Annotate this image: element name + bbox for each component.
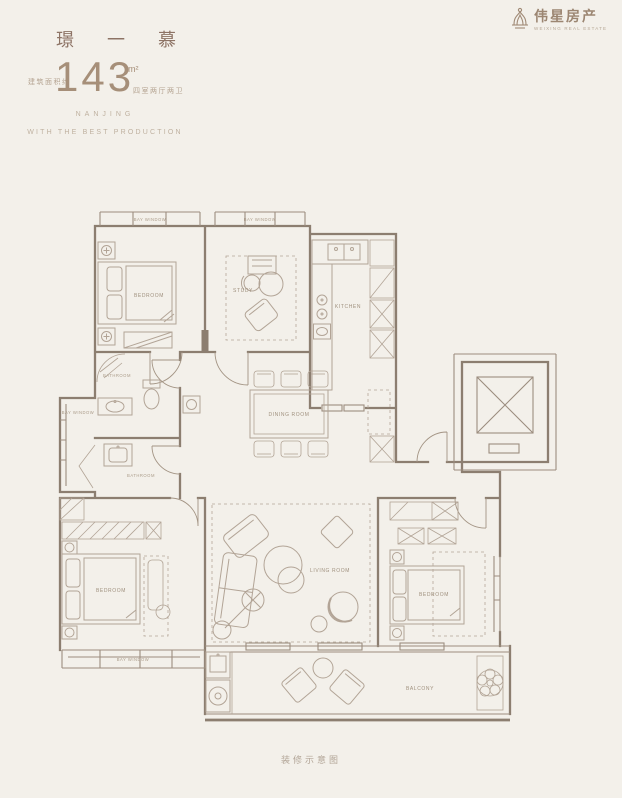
wardrobe xyxy=(390,502,458,544)
label-bay-window-3: BAY WINDOW xyxy=(62,410,95,415)
nightstand-lamp xyxy=(98,328,115,345)
label-balcony: BALCONY xyxy=(406,686,434,692)
label-bedroom-2: BEDROOM xyxy=(96,588,126,594)
bench xyxy=(124,332,172,348)
floor-lamp xyxy=(213,589,264,639)
laundry-sink xyxy=(206,652,230,678)
lounge-chair xyxy=(244,298,279,333)
balcony-chair xyxy=(329,669,366,706)
vanity-sink xyxy=(104,444,132,466)
bathroom-2 xyxy=(79,444,132,488)
label-bedroom-3: BEDROOM xyxy=(419,592,449,598)
corridor-basin xyxy=(183,396,200,413)
sink-counter xyxy=(312,240,368,264)
label-bathroom-1: BATHROOM xyxy=(103,373,131,378)
nightstand-lamp xyxy=(390,626,404,640)
balcony xyxy=(206,652,503,714)
study xyxy=(226,256,296,340)
plan-caption: 装修示意图 xyxy=(211,753,411,766)
label-bay-window-4: BAY WINDOW xyxy=(117,657,150,662)
bedroom-3 xyxy=(390,502,485,640)
washing-machine xyxy=(206,680,230,712)
label-dining-room: DINING ROOM xyxy=(268,412,309,418)
dresser xyxy=(144,556,170,636)
bathroom-1 xyxy=(97,354,160,415)
label-bay-window-2: BAY WINDOW xyxy=(244,217,277,222)
cabinet xyxy=(248,256,276,274)
folding-door xyxy=(79,445,95,488)
label-kitchen: KITCHEN xyxy=(335,304,361,310)
floor-plan: BAY WINDOW BAY WINDOW BEDROOM STUDY KITC… xyxy=(0,0,622,798)
coffee-table xyxy=(264,546,302,584)
elevator-shaft xyxy=(477,377,533,453)
table xyxy=(259,272,283,296)
plant xyxy=(477,656,503,710)
armchair xyxy=(311,592,358,632)
coffee-table xyxy=(278,567,304,593)
ottoman xyxy=(320,515,354,549)
nightstand-lamp xyxy=(62,626,77,639)
sliding-door-panels xyxy=(246,405,444,650)
wall-pillar xyxy=(202,330,209,352)
nightstand-lamp xyxy=(62,541,77,554)
label-bay-window-1: BAY WINDOW xyxy=(134,217,167,222)
nightstand-lamp xyxy=(98,242,115,259)
balcony-chair xyxy=(281,667,318,704)
wardrobe xyxy=(60,498,161,539)
bedroom-2 xyxy=(60,498,170,639)
nightstand-lamp xyxy=(390,550,404,564)
label-bathroom-2: BATHROOM xyxy=(127,473,155,478)
vanity-sink xyxy=(98,398,132,415)
label-bedroom-1: BEDROOM xyxy=(134,293,164,299)
rug xyxy=(226,256,296,340)
label-living-room: LIVING ROOM xyxy=(310,568,350,574)
service-shafts xyxy=(368,240,394,462)
label-study: STUDY xyxy=(233,288,253,294)
balcony-table xyxy=(313,658,333,678)
